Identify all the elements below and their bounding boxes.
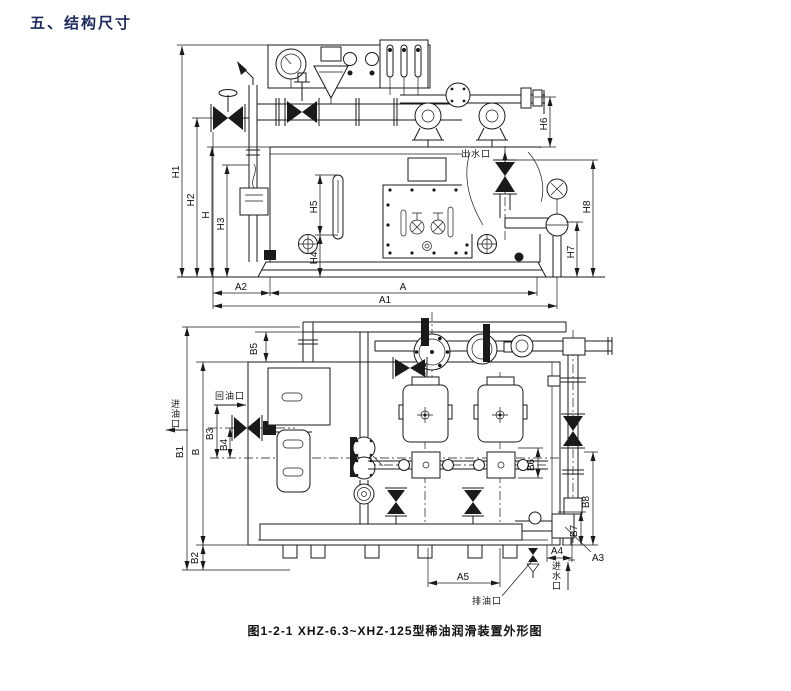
- dim-label-b8: B8: [581, 495, 592, 508]
- dim-label-a: A: [400, 282, 407, 293]
- figure-caption: 图1-2-1 XHZ-6.3~XHZ-125型稀油润滑装置外形图: [247, 623, 542, 638]
- dim-label-h3: H3: [216, 217, 227, 230]
- dim-label-b6: B6: [526, 458, 537, 471]
- dim-label-h1: H1: [171, 165, 182, 178]
- dim-label-h4: H4: [309, 251, 320, 264]
- port-label-oil-return: 回油口: [215, 390, 245, 401]
- dim-label-b3: B3: [205, 427, 216, 440]
- dim-label-a2: A2: [235, 282, 248, 293]
- dim-label-h6: H6: [539, 117, 550, 130]
- dim-label-b2: B2: [190, 551, 201, 564]
- oil-cooler: [277, 430, 310, 492]
- manual-page: 五、结构尺寸 进油口 进水口: [0, 0, 791, 691]
- bolted-access-plate: [383, 185, 472, 258]
- dim-label-b4: B4: [219, 438, 230, 451]
- gear-pump-1: [415, 103, 441, 129]
- dim-label-b: B: [191, 448, 202, 455]
- dim-label-a5: A5: [457, 572, 470, 583]
- sensor-block: [321, 47, 341, 61]
- plan-view: 回油口: [166, 312, 612, 606]
- left-valve: [211, 90, 249, 133]
- dim-label-h7: H7: [566, 245, 577, 258]
- motor-2: [478, 385, 523, 442]
- right-riser-piping: [515, 338, 586, 545]
- plan-view-dimensions: B1 B B2 B3 B4 B5 B6 B8 B7 A4 A3 A5 排油口: [175, 327, 605, 606]
- dim-label-b1: B1: [175, 445, 186, 458]
- dim-label-a3: A3: [592, 553, 605, 564]
- dim-label-a4: A4: [551, 546, 564, 557]
- motor-1: [403, 385, 448, 442]
- dim-label-h8: H8: [582, 200, 593, 213]
- dim-label-a1: A1: [379, 295, 392, 306]
- gear-pump-2: [479, 103, 505, 129]
- pump-block-2: [487, 452, 515, 478]
- dim-label-h5: H5: [309, 200, 320, 213]
- oil-drain-valve: [526, 545, 540, 578]
- dim-label-h2: H2: [186, 193, 197, 206]
- hatch-cover: [268, 368, 330, 425]
- port-label-oil-drain: 排油口: [472, 595, 502, 606]
- control-panel: [268, 40, 430, 104]
- front-view: 出水口 H1 H2 H H3 H5: [171, 40, 605, 309]
- dim-label-b7: B7: [569, 524, 580, 537]
- port-label-water-outlet: 出水口: [461, 148, 491, 159]
- dim-label-h: H: [201, 211, 212, 218]
- pump-block-1: [412, 452, 440, 478]
- water-outlet-assembly: 出水口: [461, 146, 568, 277]
- pump-units: [400, 83, 545, 147]
- oil-sight-box: [240, 188, 268, 215]
- dim-label-b5: B5: [249, 342, 260, 355]
- technical-drawing: 出水口 H1 H2 H H3 H5: [0, 0, 791, 691]
